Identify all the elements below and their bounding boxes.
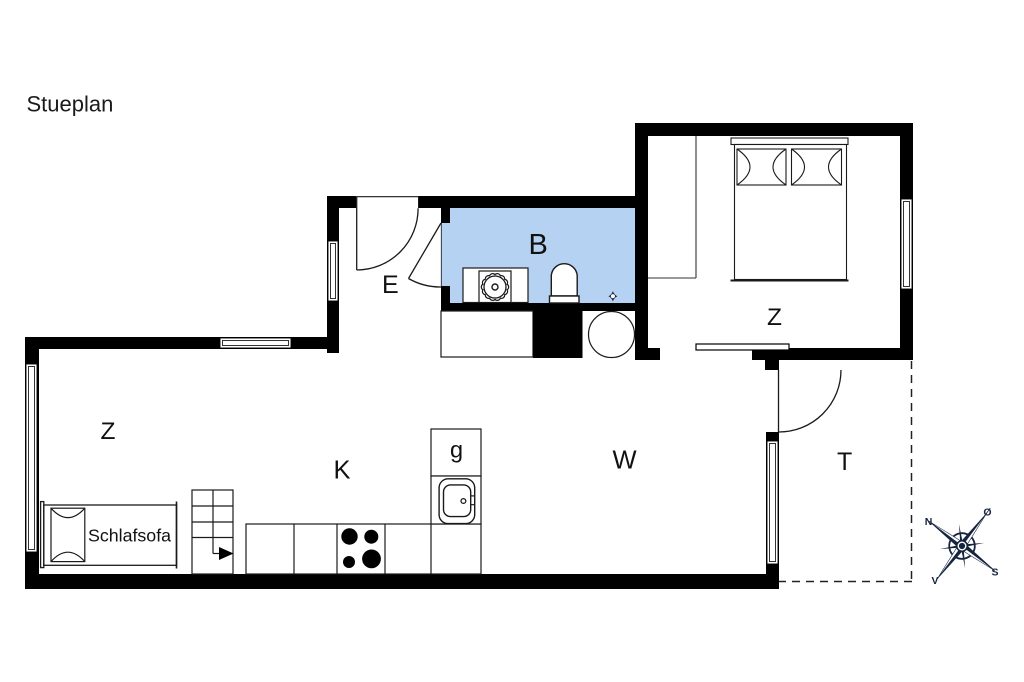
svg-text:W: W	[613, 447, 637, 475]
svg-text:Z: Z	[101, 418, 116, 445]
svg-text:V: V	[931, 575, 938, 587]
svg-text:E: E	[382, 271, 399, 299]
svg-text:K: K	[334, 457, 351, 485]
svg-text:Stueplan: Stueplan	[27, 92, 114, 117]
svg-text:B: B	[529, 229, 548, 261]
svg-text:T: T	[837, 448, 852, 476]
svg-text:g: g	[450, 437, 463, 463]
svg-text:S: S	[991, 567, 998, 579]
svg-text:Z: Z	[767, 304, 782, 331]
svg-text:Ø: Ø	[983, 507, 991, 519]
svg-text:Schlafsofa: Schlafsofa	[88, 525, 171, 545]
svg-text:N: N	[925, 516, 933, 528]
